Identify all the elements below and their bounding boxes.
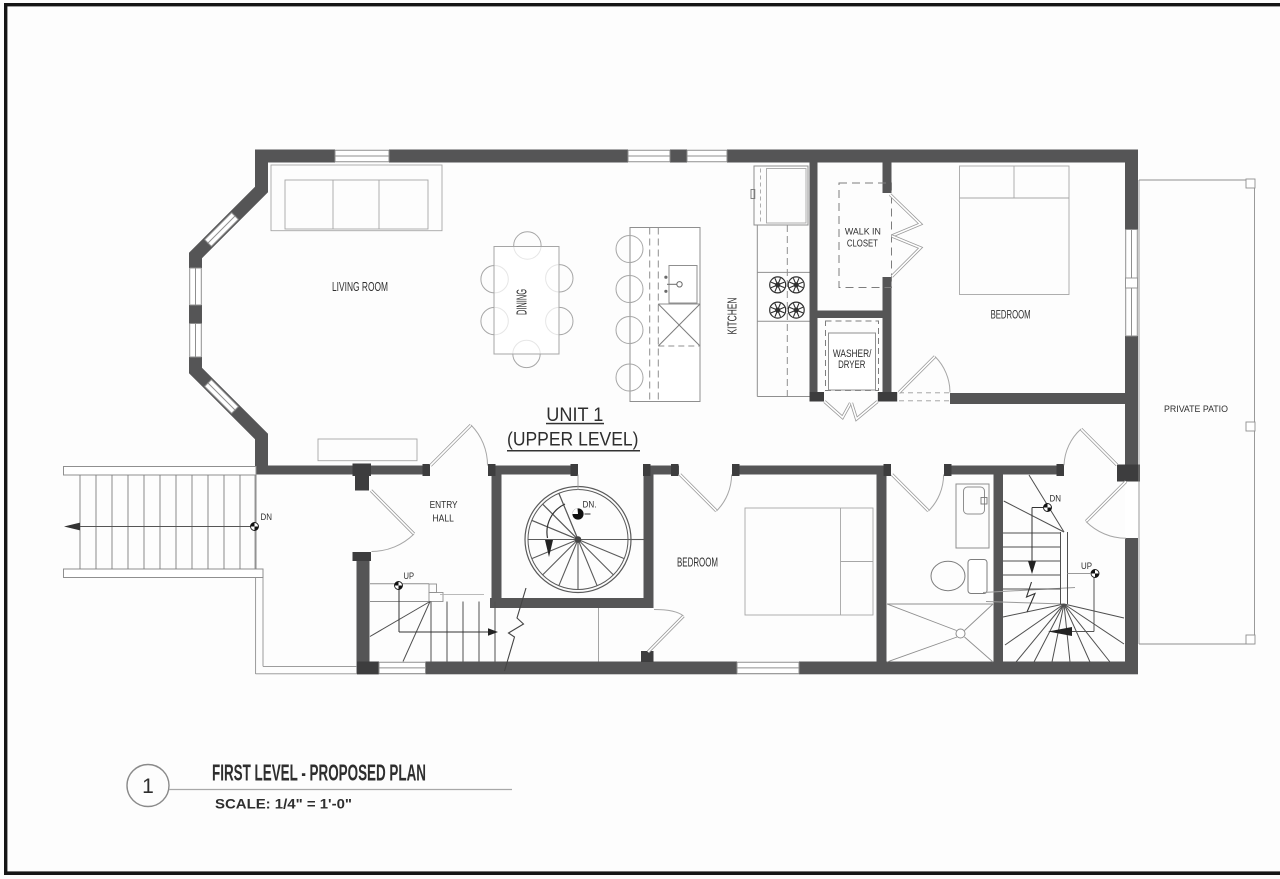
svg-text:HALL: HALL (433, 513, 454, 525)
svg-text:FIRST LEVEL - PROPOSED PLAN: FIRST LEVEL - PROPOSED PLAN (212, 760, 426, 786)
svg-text:ENTRY: ENTRY (430, 499, 458, 511)
svg-text:DN: DN (1050, 494, 1062, 504)
svg-text:PRIVATE PATIO: PRIVATE PATIO (1164, 404, 1228, 415)
svg-text:LIVING ROOM: LIVING ROOM (332, 280, 388, 294)
svg-text:CLOSET: CLOSET (847, 239, 878, 250)
svg-text:BEDROOM: BEDROOM (677, 555, 718, 570)
svg-text:1: 1 (142, 775, 154, 798)
svg-text:DINING: DINING (514, 289, 531, 315)
svg-text:BEDROOM: BEDROOM (991, 307, 1031, 321)
svg-text:UP: UP (404, 571, 415, 581)
svg-text:DN: DN (261, 512, 273, 522)
svg-text:WALK IN: WALK IN (845, 227, 881, 237)
svg-text:DRYER: DRYER (838, 359, 865, 371)
svg-text:(UPPER LEVEL): (UPPER LEVEL) (507, 429, 639, 451)
svg-text:SCALE: 1/4" = 1'-0": SCALE: 1/4" = 1'-0" (215, 797, 352, 812)
svg-text:UP: UP (1081, 561, 1092, 571)
svg-text:UNIT 1: UNIT 1 (546, 404, 603, 426)
svg-text:DN.: DN. (583, 500, 597, 510)
svg-text:KITCHEN: KITCHEN (725, 298, 740, 335)
